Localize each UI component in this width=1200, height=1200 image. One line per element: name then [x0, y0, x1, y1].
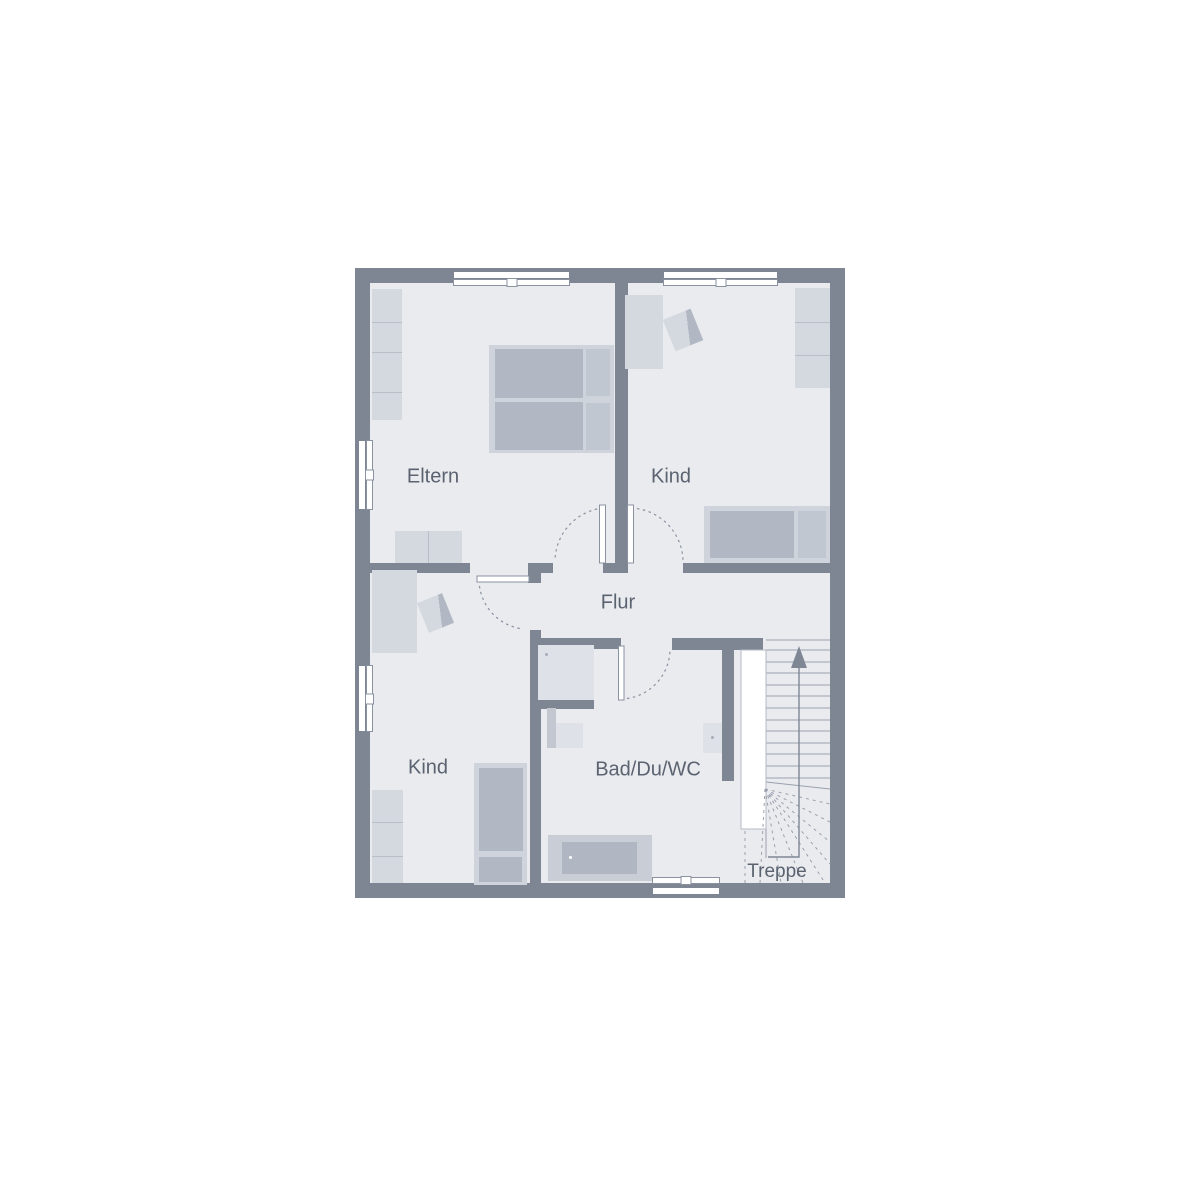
- dresser-cell: [395, 531, 428, 563]
- stair-void: [741, 650, 766, 829]
- room-label-eltern: Eltern: [407, 466, 459, 489]
- vanity-side: [547, 708, 556, 748]
- room-label-kind-top: Kind: [651, 466, 691, 489]
- pillow: [798, 511, 826, 558]
- eltern-dresser: [395, 531, 462, 563]
- window-kind-top: [663, 268, 778, 288]
- pillow: [586, 403, 610, 450]
- wardrobe-segment: [372, 392, 402, 420]
- wardrobe-segment: [795, 322, 830, 355]
- window-mullion: [365, 470, 374, 481]
- floor-plan: Eltern Kind Flur Kind Bad/Du/WC Treppe: [355, 268, 845, 898]
- mattress: [495, 349, 583, 398]
- window-mullion: [681, 876, 692, 885]
- kind-top-bed: [704, 506, 830, 563]
- wall-sink: [703, 723, 722, 753]
- wardrobe-segment: [372, 790, 403, 822]
- kind-bottom-bed: [474, 763, 527, 885]
- wardrobe-segment: [372, 289, 402, 322]
- wardrobe-segment: [372, 352, 402, 392]
- floor-plan-canvas: Eltern Kind Flur Kind Bad/Du/WC Treppe: [0, 0, 1200, 1200]
- window-bad-bottom: [652, 873, 720, 898]
- pillow: [586, 349, 610, 396]
- kind-top-wardrobe-left: [625, 295, 663, 369]
- wall-exterior-right: [830, 268, 845, 898]
- wall-bad-right: [722, 649, 734, 781]
- kind-top-wardrobe-right: [795, 288, 830, 388]
- wall-flur-top-stub: [528, 563, 553, 573]
- window-mullion: [506, 278, 517, 287]
- wall-exterior-bottom: [355, 883, 845, 898]
- wardrobe-segment: [795, 288, 830, 322]
- room-label-treppe: Treppe: [747, 861, 807, 883]
- mattress: [495, 402, 583, 450]
- kind-bottom-wardrobe-left: [372, 790, 403, 883]
- wardrobe-segment: [795, 355, 830, 388]
- window-eltern-top: [453, 268, 570, 288]
- bathtub: [548, 835, 652, 881]
- eltern-wardrobe: [372, 289, 402, 420]
- bathtub-basin: [562, 842, 637, 874]
- window-kind-bottom-left: [355, 665, 375, 732]
- mattress: [479, 768, 523, 851]
- pillow: [479, 857, 522, 882]
- shower: [538, 645, 594, 701]
- eltern-double-bed: [489, 345, 614, 453]
- wardrobe-segment: [372, 856, 403, 883]
- wall-bad-top-right: [672, 638, 763, 650]
- wall-flur-corner-stub: [528, 573, 541, 583]
- kind-bottom-wardrobe-top: [372, 570, 417, 653]
- mattress: [710, 511, 794, 558]
- bathtub-drain: [569, 856, 572, 859]
- shower-drain: [545, 653, 548, 656]
- window-mullion: [365, 693, 374, 704]
- wall-eltern-door-jamb: [603, 563, 615, 573]
- dresser-cell: [429, 531, 462, 563]
- window-eltern-left: [355, 440, 375, 510]
- vanity-sink: [556, 723, 583, 748]
- window-sill: [652, 887, 720, 895]
- window-mullion: [715, 278, 726, 287]
- room-label-flur: Flur: [601, 592, 635, 615]
- room-label-kind-bottom: Kind: [408, 757, 448, 780]
- wall-exterior-left: [355, 268, 370, 898]
- wall-flur-top-right: [683, 563, 830, 573]
- room-label-bad: Bad/Du/WC: [595, 759, 701, 782]
- sink-drain: [711, 736, 714, 739]
- wardrobe-segment: [372, 322, 402, 352]
- wardrobe-segment: [372, 822, 403, 856]
